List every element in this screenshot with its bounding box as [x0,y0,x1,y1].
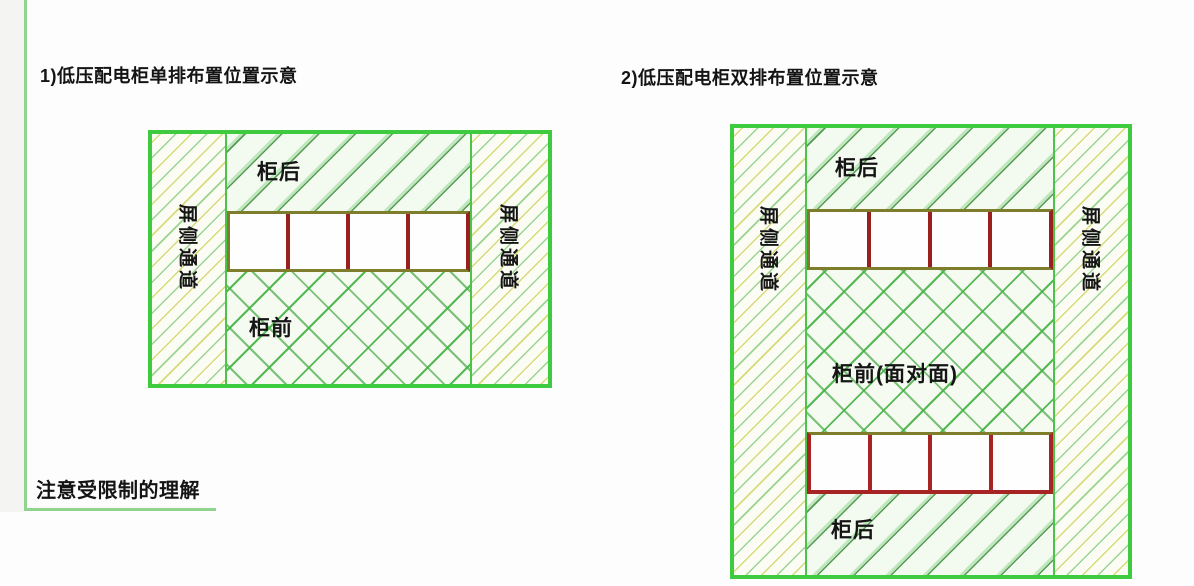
cabinet-cell [928,212,989,267]
cabinet-cell [811,435,868,490]
side-passage-left: 屏侧通道 [734,128,807,575]
cabinet-cell [810,212,867,267]
note-text: 注意受限制的理解 [36,474,200,503]
behind-cabinet-area-bottom: 柜后 [807,494,1053,575]
frame-vertical-line [24,0,27,510]
side-passage-right: 屏侧通道 [1053,128,1128,575]
diagram-single-row: 屏侧通道 柜后 柜前 屏侧通道 [148,130,552,388]
diagram-double-row: 屏侧通道 柜后 柜前(面对面) 柜后 屏侧通道 [730,124,1132,579]
front-cabinet-area: 柜前 [227,272,470,384]
diagram2-title: 2)低压配电柜双排布置位置示意 [621,64,879,90]
behind-cabinet-top-label: 柜后 [835,152,879,182]
cabinet-cell [868,435,929,490]
cabinet-cell [230,214,286,269]
front-face-to-face-label: 柜前(面对面) [832,358,958,388]
behind-cabinet-area: 柜后 [227,134,470,211]
side-passage-right-label: 屏侧通道 [497,204,524,292]
page-margin-strip [0,0,24,512]
cabinet-cell [928,435,989,490]
cabinet-cell [988,212,1049,267]
behind-cabinet-bottom-label: 柜后 [831,514,875,544]
diagram1-title: 1)低压配电柜单排布置位置示意 [40,62,298,88]
cabinet-row-bottom [807,432,1053,494]
cabinet-cell [406,214,466,269]
front-face-to-face-area: 柜前(面对面) [807,270,1053,432]
drawing-canvas: 1)低压配电柜单排布置位置示意 2)低压配电柜双排布置位置示意 注意受限制的理解… [0,0,1194,586]
behind-cabinet-area-top: 柜后 [807,128,1053,209]
side-passage-left-label: 屏侧通道 [175,204,202,292]
side-passage-right-label: 屏侧通道 [1078,206,1105,294]
side-passage-right: 屏侧通道 [470,134,548,384]
frame-horizontal-line [24,508,216,511]
side-passage-left: 屏侧通道 [152,134,227,384]
front-cabinet-label: 柜前 [249,312,293,342]
cabinet-cell [286,214,346,269]
behind-cabinet-label: 柜后 [257,156,301,186]
cabinet-cell [989,435,1050,490]
cabinet-row [227,211,470,272]
cabinet-row-top [807,209,1053,270]
cabinet-cell [346,214,406,269]
side-passage-left-label: 屏侧通道 [756,206,783,294]
cabinet-cell [867,212,928,267]
